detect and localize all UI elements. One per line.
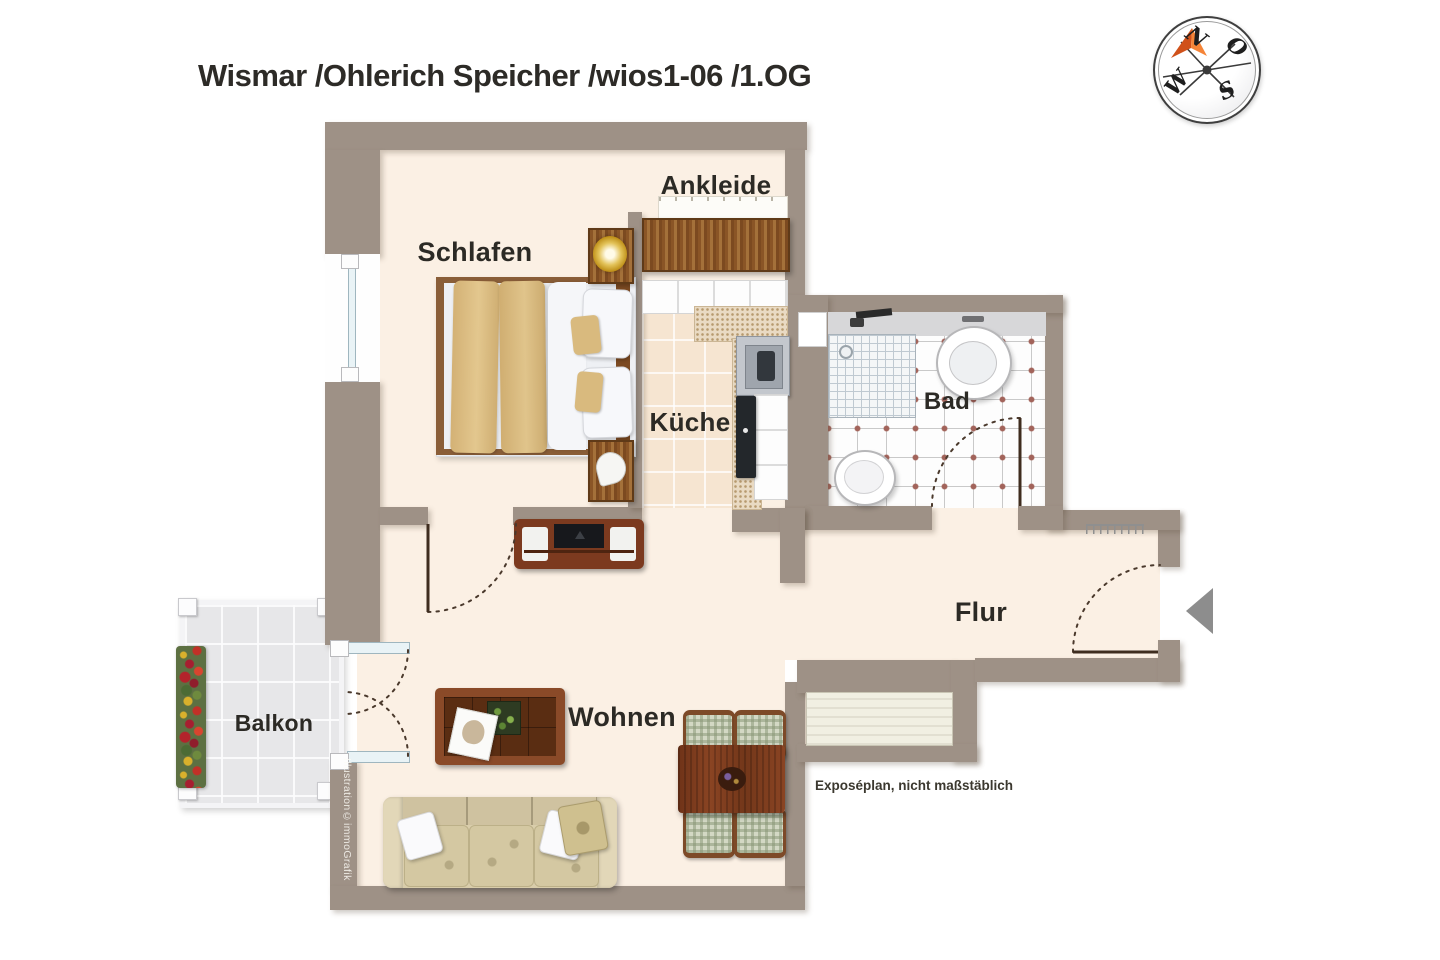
wall-segment <box>325 380 380 645</box>
page-title: Wismar /Ohlerich Speicher /wios1-06 /1.O… <box>198 58 811 94</box>
stove-slot <box>757 351 775 381</box>
dining-chair <box>734 808 786 858</box>
wall-segment <box>780 508 805 583</box>
wall-segment <box>797 660 953 693</box>
table-lamp <box>593 236 627 272</box>
sideboard-panel <box>522 527 548 561</box>
shower <box>828 334 916 418</box>
wall-segment <box>325 150 380 256</box>
shower-fixture-head <box>850 318 864 327</box>
tv-sideboard <box>514 519 644 569</box>
stove <box>736 336 790 396</box>
room-label-schlafen: Schlafen <box>380 237 570 268</box>
wall-segment <box>380 507 428 525</box>
room-label-flur: Flur <box>940 597 1022 628</box>
bed-frame-left <box>436 277 444 455</box>
wall-segment <box>1158 640 1180 682</box>
window-frame-cap <box>341 367 359 382</box>
wardrobe <box>642 218 790 272</box>
table-centerpiece <box>718 767 746 791</box>
bed-blanket <box>499 281 547 454</box>
balcony-door-panel <box>347 642 410 654</box>
floor-bad-doorway <box>932 506 1018 532</box>
bed-duvet-fold <box>548 282 586 450</box>
floor-flur <box>785 530 1160 660</box>
floorplan-page: Wismar /Ohlerich Speicher /wios1-06 /1.O… <box>0 0 1440 960</box>
sofa-cushion <box>469 825 534 887</box>
toilet <box>834 450 896 506</box>
kitchen-counter-right <box>754 394 788 500</box>
sideboard-panel <box>610 527 636 561</box>
entrance-arrow-icon <box>1186 588 1213 634</box>
hall-closet <box>806 692 953 746</box>
balcony-door-panel <box>347 751 410 763</box>
sideboard-shelf-line <box>524 550 634 553</box>
tv-stand-icon <box>575 531 585 539</box>
balcony-flower-box <box>176 646 206 788</box>
sink-faucet <box>962 316 984 322</box>
bed-blanket <box>450 281 500 454</box>
room-label-ankleide: Ankleide <box>640 170 792 201</box>
wall-segment <box>805 506 932 530</box>
compass-rose: N O S W <box>1153 16 1261 124</box>
shower-drain <box>839 345 853 359</box>
sofa-armrest <box>383 797 403 888</box>
wall-segment <box>1045 295 1063 510</box>
room-label-kueche: Küche <box>628 407 752 438</box>
balcony-post <box>178 598 197 616</box>
wall-segment <box>785 682 805 886</box>
bath-sink-basin <box>949 341 997 385</box>
sofa <box>383 797 617 888</box>
wall-segment <box>797 744 977 762</box>
room-label-balkon: Balkon <box>214 710 334 737</box>
window-glass <box>348 264 356 374</box>
dining-chair <box>683 808 735 858</box>
wall-segment <box>330 886 805 910</box>
balcony-door-hinge <box>330 640 349 657</box>
radiator <box>1086 524 1144 534</box>
toilet-seat <box>844 460 884 494</box>
dining-table <box>678 745 785 813</box>
shaft-niche <box>798 312 827 347</box>
disclaimer-note: Exposéplan, nicht maßstäblich <box>815 778 1013 793</box>
bed-cushion <box>574 371 603 413</box>
wall-segment <box>975 658 1180 682</box>
room-label-wohnen: Wohnen <box>538 702 706 733</box>
wall-segment <box>1018 506 1063 530</box>
window-frame-cap <box>341 254 359 269</box>
wall-segment <box>325 122 807 150</box>
illustrator-credit: Illustration©immoGrafik <box>341 758 353 881</box>
magazine-photo <box>460 718 487 746</box>
room-label-bad: Bad <box>916 388 978 416</box>
bed-cushion <box>570 315 602 356</box>
sofa-pillow-pattern <box>557 800 609 857</box>
